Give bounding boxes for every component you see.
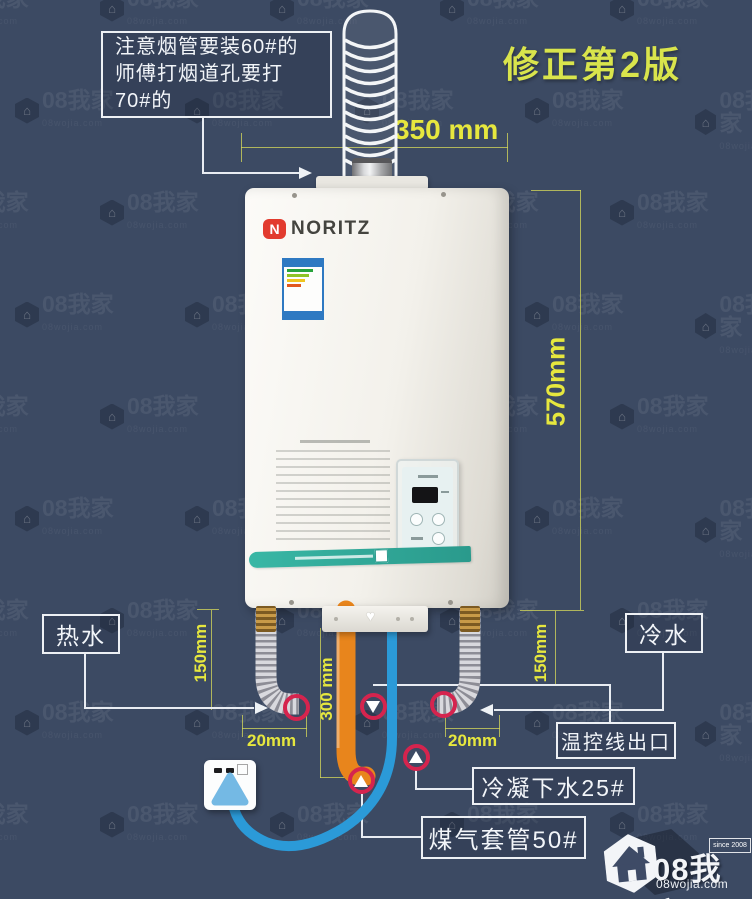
condensate-label: 冷凝下水25#: [481, 769, 625, 803]
bottom-mounting-bracket: ♥: [322, 606, 428, 632]
hot-water-box: 热水: [42, 614, 120, 654]
cold-water-box: 冷水: [625, 613, 703, 653]
outlet-ground-triangle: [204, 760, 256, 810]
heart-cutout: ♥: [366, 608, 375, 625]
thermostat-arrow: [366, 701, 380, 713]
thermostat-outlet-box: 温控线出口: [556, 722, 676, 759]
hot-water-label: 热水: [56, 617, 106, 651]
condensate-box: 冷凝下水25#: [472, 767, 635, 805]
logo-since-badge: since 2008: [709, 838, 751, 853]
cold-water-label: 冷水: [639, 616, 689, 650]
gas-sleeve-label: 煤气套管50#: [428, 820, 578, 855]
orange-gas-pipe: [338, 610, 366, 776]
gas-arrow: [354, 775, 368, 787]
revision-title: 修正第2版: [503, 36, 682, 88]
cold-hose-fitting: [460, 606, 480, 632]
power-outlet: [204, 760, 256, 810]
installation-diagram: ⌂08我家08wojia.com⌂08我家08wojia.com⌂08我家08w…: [0, 0, 752, 899]
marker-cold-hose: [430, 691, 457, 718]
hot-hose-fitting: [256, 606, 276, 632]
condensate-arrow: [409, 751, 423, 763]
note-line-2: 师傅打烟道孔要打: [115, 61, 283, 88]
note-box: 注意烟管要装60#的 师傅打烟道孔要打 70#的: [101, 31, 332, 118]
logo-domain: 08wojia.com: [656, 877, 728, 891]
note-line-1: 注意烟管要装60#的: [115, 34, 298, 61]
thermostat-outlet-label: 温控线出口: [561, 726, 671, 755]
marker-hot-hose: [283, 694, 310, 721]
gas-sleeve-box: 煤气套管50#: [421, 816, 586, 859]
note-line-3: 70#的: [115, 88, 172, 115]
pipes-layer: [0, 0, 752, 899]
